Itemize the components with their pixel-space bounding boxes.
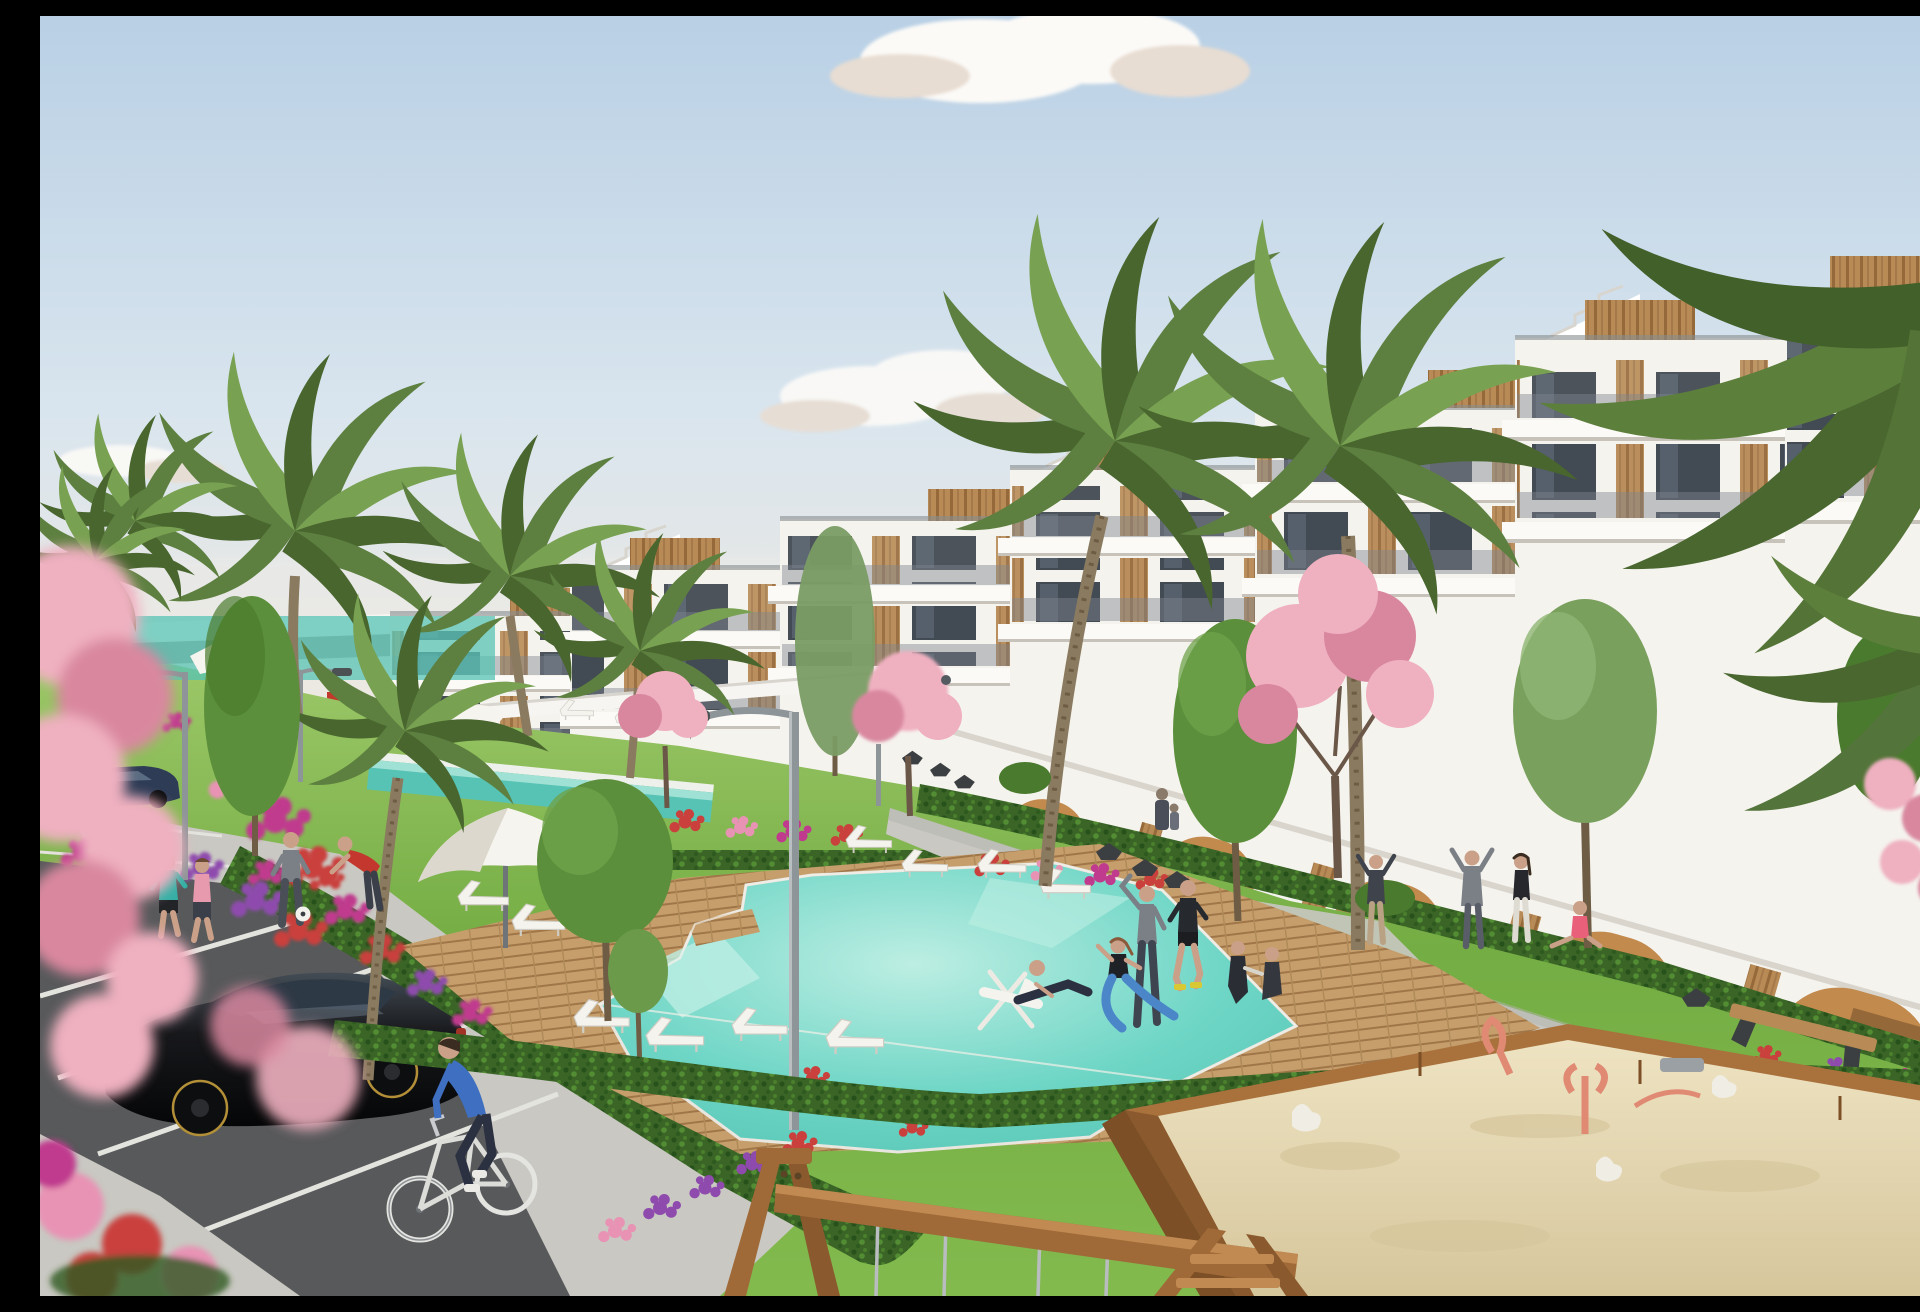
architectural-render: [40, 16, 1920, 1296]
bollard-light: [876, 744, 881, 806]
toy-trough: [1660, 1058, 1704, 1072]
scene-canvas: [40, 16, 1920, 1296]
person-distant: [941, 675, 951, 685]
